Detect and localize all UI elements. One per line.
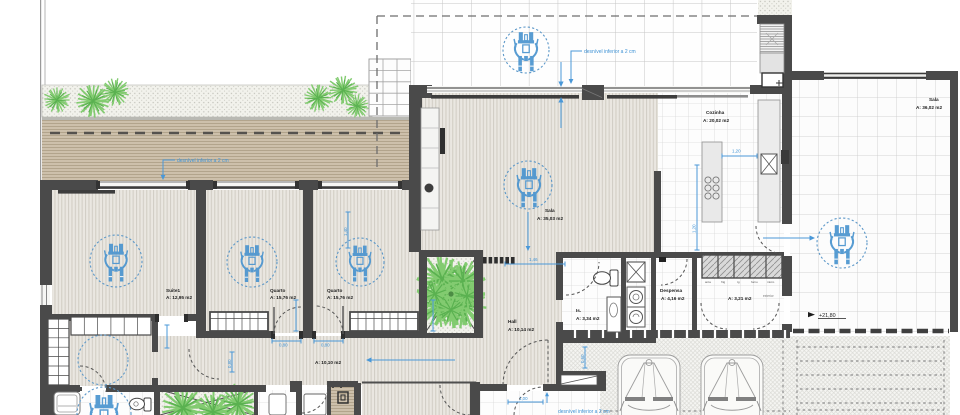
- svg-text:Quarto: Quarto: [270, 288, 286, 293]
- svg-text:1,40: 1,40: [343, 227, 348, 236]
- svg-text:micro: micro: [767, 280, 775, 284]
- svg-text:Cozinha: Cozinha: [706, 110, 725, 115]
- svg-text:Sala: Sala: [929, 97, 939, 102]
- svg-text:Despensa: Despensa: [660, 288, 683, 293]
- svg-text:Quarto: Quarto: [327, 288, 343, 293]
- svg-text:0,60: 0,60: [580, 354, 585, 363]
- svg-text:Suite1: Suite1: [166, 288, 180, 293]
- svg-text:A: 35,03 m2: A: 35,03 m2: [537, 216, 563, 221]
- svg-text:0,80: 0,80: [227, 359, 232, 368]
- svg-text:desnível inferior a 2 cm: desnível inferior a 2 cm: [584, 49, 636, 55]
- svg-text:desnível inferior a 2 cm: desnível inferior a 2 cm: [177, 158, 229, 164]
- svg-text:A: 15,76 m2: A: 15,76 m2: [327, 295, 353, 300]
- svg-text:A: 4,16 m2: A: 4,16 m2: [661, 296, 685, 301]
- svg-text:A: 12,95 m2: A: 12,95 m2: [166, 295, 192, 300]
- svg-text:A: 10,10 m2: A: 10,10 m2: [315, 360, 341, 365]
- svg-text:1,46: 1,46: [529, 257, 538, 262]
- svg-text:Hall: Hall: [508, 319, 517, 324]
- svg-text:A: 36,02 m2: A: 36,02 m2: [916, 105, 942, 110]
- svg-text:desnível inferior a 2 cm: desnível inferior a 2 cm: [558, 409, 610, 415]
- svg-text:0,80: 0,80: [279, 343, 288, 348]
- svg-text:exterior: exterior: [763, 294, 775, 298]
- svg-text:tg: tg: [737, 280, 740, 284]
- svg-text:A: 3,34 m2: A: 3,34 m2: [576, 316, 600, 321]
- svg-text:Is.: Is.: [576, 308, 581, 313]
- svg-text:Sala: Sala: [545, 208, 555, 213]
- svg-text:A: 20,02 m2: A: 20,02 m2: [703, 118, 729, 123]
- svg-text:0,80: 0,80: [321, 343, 330, 348]
- svg-text:A: 15,76 m2: A: 15,76 m2: [270, 295, 296, 300]
- svg-text:arca: arca: [705, 280, 711, 284]
- svg-text:1,20: 1,20: [692, 224, 697, 233]
- svg-text:frig: frig: [721, 280, 725, 284]
- svg-text:1,20: 1,20: [732, 149, 741, 154]
- svg-text:A: 10,14 m2: A: 10,14 m2: [508, 327, 534, 332]
- svg-text:forno: forno: [751, 280, 758, 284]
- svg-text:1,00: 1,00: [519, 396, 528, 401]
- svg-text:A: 3,21 m2: A: 3,21 m2: [728, 296, 752, 301]
